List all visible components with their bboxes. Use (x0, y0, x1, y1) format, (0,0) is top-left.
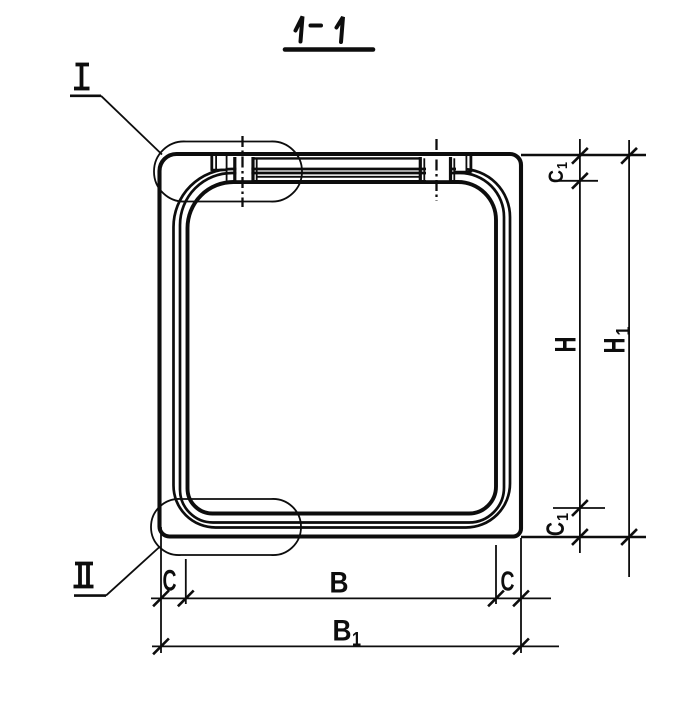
svg-text:C: C (501, 566, 515, 597)
svg-text:C: C (163, 565, 177, 598)
svg-text:H: H (599, 338, 632, 354)
svg-text:B: B (330, 567, 349, 600)
svg-text:1: 1 (614, 326, 635, 335)
svg-text:1: 1 (352, 630, 361, 651)
svg-text:C: C (545, 170, 568, 183)
svg-text:1: 1 (554, 162, 571, 169)
svg-text:H: H (550, 337, 583, 353)
svg-text:1: 1 (555, 513, 572, 521)
svg-text:B: B (333, 615, 352, 648)
svg-text:C: C (542, 522, 570, 536)
